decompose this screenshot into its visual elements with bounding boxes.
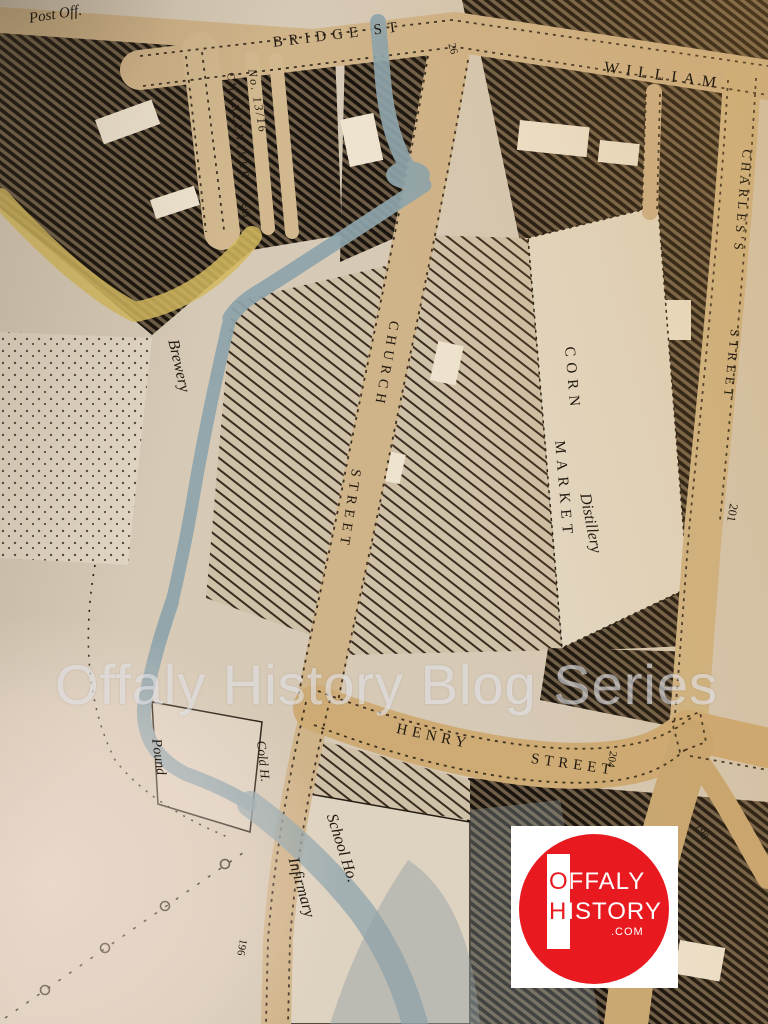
- label-cold-harbour: Cold H.: [255, 740, 272, 782]
- offaly-history-logo: OFFALY HISTORY .COM: [511, 826, 678, 988]
- watermark-text: Offaly History Blog Series: [55, 652, 718, 717]
- label-plot-201: 201: [725, 503, 740, 523]
- logo-line-offaly: OFFALY: [549, 868, 645, 896]
- label-plot-204: 204: [604, 750, 618, 768]
- antique-map-photo: Post Off. BRIDGE ST WILLIAM 26 CHARLEVIL…: [0, 0, 768, 1024]
- label-plot-196: 196: [234, 938, 248, 956]
- logo-domain: .COM: [611, 926, 644, 938]
- logo-line-history: HISTORY: [549, 898, 662, 926]
